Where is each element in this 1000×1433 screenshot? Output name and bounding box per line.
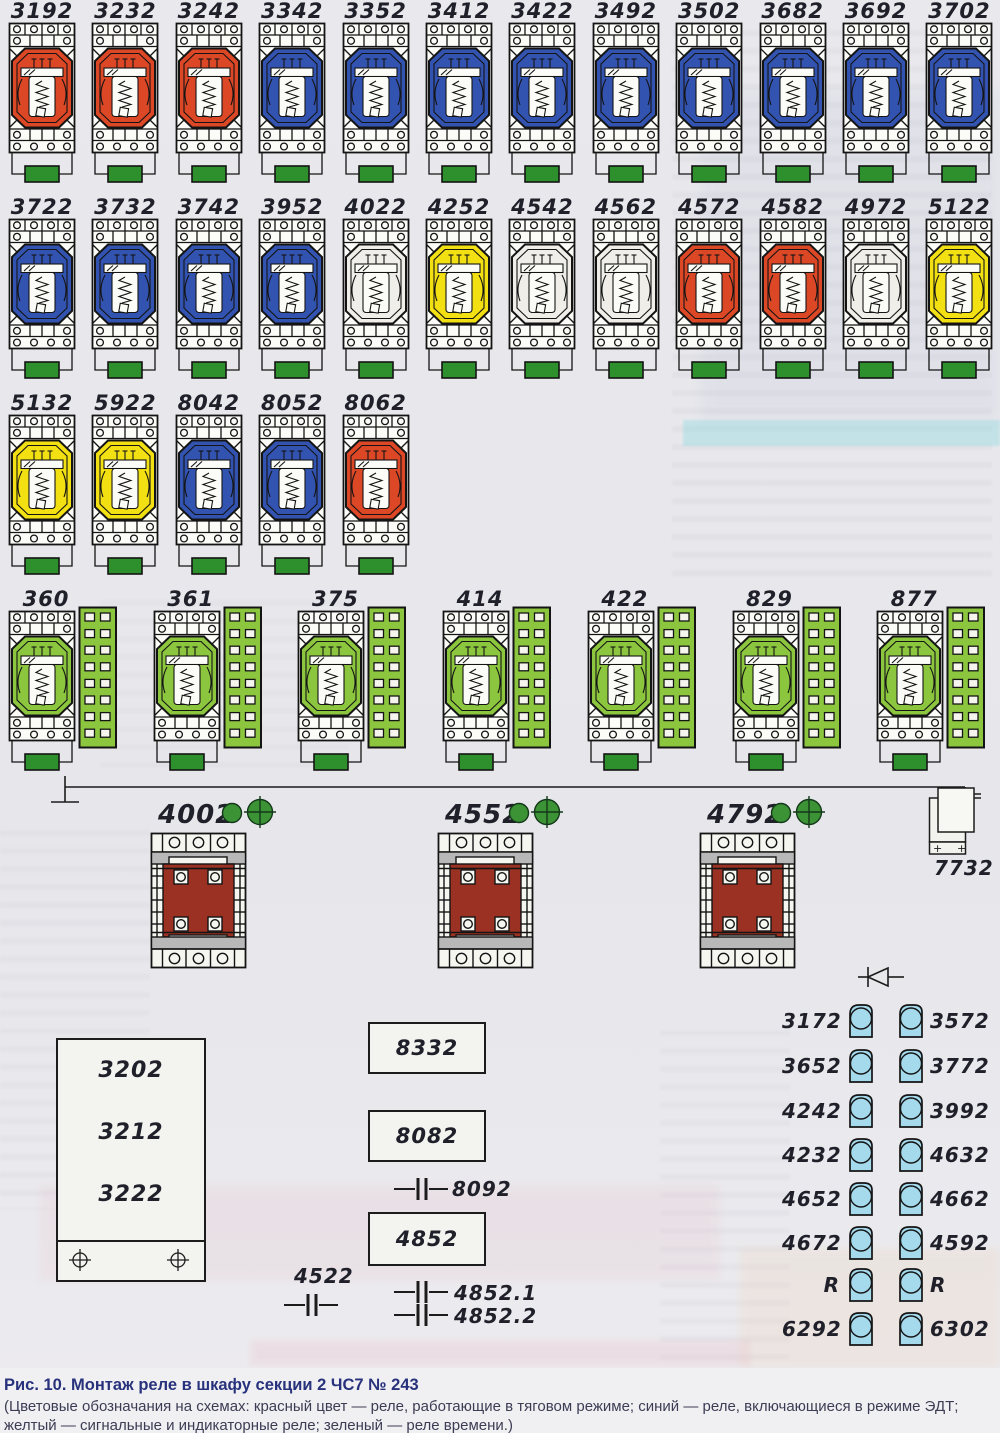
indicator-lamp <box>898 1225 924 1265</box>
relay-icon <box>258 22 326 188</box>
indicator-lamp <box>898 1003 924 1043</box>
relay-unit: 5922 <box>91 392 159 584</box>
transformer-icon <box>150 832 247 969</box>
relay-unit: 8062 <box>342 392 410 584</box>
bleed-through-artifact <box>660 1030 790 1360</box>
time-relay-contact-icon <box>505 794 569 830</box>
relay-unit: 3702 <box>925 0 993 192</box>
indicator-lamp-icon <box>898 1267 924 1303</box>
relay-unit: 4572 <box>675 196 743 388</box>
relay-unit: 4582 <box>759 196 827 388</box>
relay-icon <box>342 218 410 384</box>
indicator-lamp-icon <box>848 1137 874 1173</box>
relay-icon <box>175 218 243 384</box>
relay-icon <box>675 22 743 188</box>
relay-icon <box>91 22 159 188</box>
capacitor-stack-7732: + + 7732 <box>928 786 988 878</box>
terminal-box-label: 3202 <box>58 1058 204 1083</box>
indicator-label-right: 3992 <box>930 1099 1000 1123</box>
relay-label: 3682 <box>759 0 827 22</box>
indicator-label-left: 4232 <box>782 1143 840 1167</box>
relay-icon <box>425 218 493 384</box>
transformer-unit: 4792 <box>699 792 859 972</box>
transformer-unit: 4552 <box>437 792 597 972</box>
diode-icon <box>858 962 904 992</box>
relay-label: 4542 <box>508 196 576 218</box>
indicator-lamp <box>848 1267 874 1307</box>
relay-unit: 3342 <box>258 0 326 192</box>
capacitor-label: 8092 <box>452 1177 512 1201</box>
indicator-lamp-icon <box>898 1137 924 1173</box>
relay-label: 4572 <box>675 196 743 218</box>
relay-icon <box>175 22 243 188</box>
relay-icon <box>91 414 159 580</box>
relay-unit: 4022 <box>342 196 410 388</box>
relay-icon <box>732 610 800 776</box>
transformer-icon <box>699 832 796 969</box>
indicator-lamp <box>898 1267 924 1307</box>
relay-icon <box>8 610 76 776</box>
component-box: 8082 <box>368 1110 486 1162</box>
timer-contact-panel-icon <box>512 606 552 750</box>
time-relay-contact-icon <box>218 794 282 830</box>
timer-relay-unit: 375 <box>297 588 409 756</box>
relay-label: 375 <box>297 588 373 610</box>
terminal-box: 320232123222 <box>56 1038 206 1242</box>
stack-icon: + + <box>928 786 982 858</box>
relay-label: 3952 <box>258 196 326 218</box>
relay-unit: 8052 <box>258 392 326 584</box>
relay-icon <box>675 218 743 384</box>
relay-unit: 3492 <box>592 0 660 192</box>
timer-contact-panel-icon <box>946 606 986 750</box>
relay-icon <box>925 218 993 384</box>
stack-label: 7732 <box>934 856 994 880</box>
figure-caption: Рис. 10. Монтаж реле в шкафу секции 2 ЧС… <box>0 1368 1000 1433</box>
relay-label: 361 <box>153 588 229 610</box>
indicator-lamp <box>848 1137 874 1177</box>
indicator-lamp-icon <box>848 1048 874 1084</box>
relay-icon <box>508 22 576 188</box>
relay-label: 3422 <box>508 0 576 22</box>
relay-label: 3692 <box>842 0 910 22</box>
indicator-lamp <box>848 1048 874 1088</box>
timer-relay-unit: 877 <box>876 588 988 756</box>
timer-relay-unit: 422 <box>587 588 699 756</box>
indicator-label-right: 4662 <box>930 1187 1000 1211</box>
relay-label: 3742 <box>175 196 243 218</box>
mount-hole-icon <box>164 1246 192 1274</box>
relay-unit: 3412 <box>425 0 493 192</box>
relay-unit: 3192 <box>8 0 76 192</box>
relay-unit: 3742 <box>175 196 243 388</box>
relay-icon <box>587 610 655 776</box>
indicator-label-left: 6292 <box>782 1317 840 1341</box>
indicator-lamp-icon <box>848 1225 874 1261</box>
relay-unit: 4542 <box>508 196 576 388</box>
terminal-box-label: 3222 <box>58 1182 204 1207</box>
relay-icon <box>592 218 660 384</box>
relay-icon <box>342 414 410 580</box>
indicator-lamp-icon <box>898 1181 924 1217</box>
timer-contact-panel-icon <box>78 606 118 750</box>
indicator-lamp-icon <box>898 1225 924 1261</box>
terminal-box-label: 3212 <box>58 1120 204 1145</box>
component-label: 8082 <box>396 1124 458 1148</box>
component-label: 8332 <box>396 1036 458 1060</box>
relay-icon <box>842 22 910 188</box>
indicator-lamp <box>898 1093 924 1133</box>
relay-icon <box>876 610 944 776</box>
indicator-label-right: 4592 <box>930 1231 1000 1255</box>
relay-label: 5922 <box>91 392 159 414</box>
indicator-label-left: 4672 <box>782 1231 840 1255</box>
relay-label: 877 <box>876 588 952 610</box>
relay-icon <box>508 218 576 384</box>
relay-icon <box>175 414 243 580</box>
relay-label: 3732 <box>91 196 159 218</box>
relay-icon <box>297 610 365 776</box>
indicator-lamp <box>898 1137 924 1177</box>
relay-icon <box>925 22 993 188</box>
transformer-unit: 4002 <box>150 792 310 972</box>
indicator-label-left: 3172 <box>782 1009 840 1033</box>
relay-icon <box>153 610 221 776</box>
relay-icon <box>8 218 76 384</box>
relay-label: 4582 <box>759 196 827 218</box>
relay-icon <box>759 218 827 384</box>
relay-label: 4022 <box>342 196 410 218</box>
relay-label: 3232 <box>91 0 159 22</box>
relay-label: 3342 <box>258 0 326 22</box>
indicator-lamp-icon <box>898 1048 924 1084</box>
caption-title: Рис. 10. Монтаж реле в шкафу секции 2 ЧС… <box>4 1376 996 1395</box>
component-label: 4852 <box>396 1227 458 1251</box>
relay-icon <box>342 22 410 188</box>
relay-unit: 3352 <box>342 0 410 192</box>
relay-label: 360 <box>8 588 84 610</box>
indicator-label-right: R <box>930 1273 1000 1297</box>
indicator-label-right: 3772 <box>930 1054 1000 1078</box>
relay-unit: 3952 <box>258 196 326 388</box>
indicator-lamp-icon <box>848 1267 874 1303</box>
indicator-lamp-icon <box>848 1003 874 1039</box>
indicator-lamp-icon <box>848 1311 874 1347</box>
indicator-lamp-icon <box>898 1093 924 1129</box>
capacitor-unit <box>394 1176 448 1206</box>
relay-label: 8062 <box>342 392 410 414</box>
relay-unit: 4562 <box>592 196 660 388</box>
indicator-label-right: 6302 <box>930 1317 1000 1341</box>
relay-label: 3352 <box>342 0 410 22</box>
indicator-label-right: 4632 <box>930 1143 1000 1167</box>
relay-unit: 8042 <box>175 392 243 584</box>
time-relay-contact-icon <box>767 794 831 830</box>
indicator-lamp <box>848 1311 874 1351</box>
timer-relay-unit: 360 <box>8 588 120 756</box>
mount-hole-icon <box>66 1246 94 1274</box>
timer-relay-unit: 361 <box>153 588 265 756</box>
timer-contact-panel-icon <box>802 606 842 750</box>
indicator-lamp-icon <box>848 1093 874 1129</box>
transformer-icon <box>437 832 534 969</box>
relay-unit: 4972 <box>842 196 910 388</box>
relay-unit: 5132 <box>8 392 76 584</box>
indicator-lamp <box>848 1093 874 1133</box>
indicator-label-left: 4242 <box>782 1099 840 1123</box>
relay-icon <box>592 22 660 188</box>
relay-icon <box>258 218 326 384</box>
relay-unit: 5122 <box>925 196 993 388</box>
relay-unit: 3732 <box>91 196 159 388</box>
capacitor-label: 4852.2 <box>454 1304 537 1328</box>
capacitor-unit <box>394 1302 448 1332</box>
indicator-lamp <box>898 1181 924 1221</box>
relay-label: 4972 <box>842 196 910 218</box>
relay-label: 4252 <box>425 196 493 218</box>
capacitor-label: 4852.1 <box>454 1281 537 1305</box>
relay-icon <box>91 218 159 384</box>
capacitor-icon <box>394 1176 448 1202</box>
relay-unit: 3422 <box>508 0 576 192</box>
indicator-label-left: R <box>782 1273 840 1297</box>
relay-label: 3192 <box>8 0 76 22</box>
relay-unit: 3682 <box>759 0 827 192</box>
relay-label: 8052 <box>258 392 326 414</box>
component-box: 4852 <box>368 1212 486 1266</box>
relay-label: 422 <box>587 588 663 610</box>
timer-contact-panel-icon <box>367 606 407 750</box>
bleed-through-artifact <box>683 420 1000 446</box>
relay-label: 5122 <box>925 196 993 218</box>
indicator-lamp-icon <box>898 1003 924 1039</box>
relay-label: 3242 <box>175 0 243 22</box>
relay-icon <box>842 218 910 384</box>
terminal-box-base <box>56 1240 206 1282</box>
bleed-through-artifact <box>250 1340 750 1366</box>
plus-mark: + <box>933 842 942 855</box>
relay-icon <box>8 22 76 188</box>
relay-unit: 3692 <box>842 0 910 192</box>
indicator-lamp <box>848 1225 874 1265</box>
caption-body: (Цветовые обозначания на схемах: красный… <box>4 1397 994 1433</box>
relay-icon <box>8 414 76 580</box>
timer-contact-panel-icon <box>657 606 697 750</box>
indicator-lamp <box>898 1048 924 1088</box>
relay-unit: 3232 <box>91 0 159 192</box>
relay-icon <box>759 22 827 188</box>
indicator-lamp-icon <box>848 1181 874 1217</box>
relay-icon <box>258 414 326 580</box>
indicator-label-left: 3652 <box>782 1054 840 1078</box>
relay-label: 3412 <box>425 0 493 22</box>
plus-mark: + <box>957 842 966 855</box>
relay-unit: 3242 <box>175 0 243 192</box>
relay-label: 414 <box>442 588 518 610</box>
relay-label: 5132 <box>8 392 76 414</box>
relay-label: 8042 <box>175 392 243 414</box>
capacitor-label: 4522 <box>294 1264 354 1288</box>
indicator-lamp <box>848 1003 874 1043</box>
scanned-diagram-page: 3192 3232 <box>0 0 1000 1433</box>
indicator-label-left: 4652 <box>782 1187 840 1211</box>
relay-label: 3722 <box>8 196 76 218</box>
relay-label: 3492 <box>592 0 660 22</box>
indicator-lamp <box>848 1181 874 1221</box>
capacitor-unit <box>284 1292 338 1322</box>
relay-unit: 3502 <box>675 0 743 192</box>
relay-label: 4562 <box>592 196 660 218</box>
capacitor-icon <box>394 1302 448 1328</box>
relay-label: 3502 <box>675 0 743 22</box>
capacitor-icon <box>284 1292 338 1318</box>
indicator-label-right: 3572 <box>930 1009 1000 1033</box>
timer-contact-panel-icon <box>223 606 263 750</box>
relay-icon <box>442 610 510 776</box>
relay-unit: 4252 <box>425 196 493 388</box>
relay-label: 3702 <box>925 0 993 22</box>
indicator-lamp-icon <box>898 1311 924 1347</box>
timer-relay-unit: 414 <box>442 588 554 756</box>
timer-relay-unit: 829 <box>732 588 844 756</box>
relay-label: 829 <box>732 588 808 610</box>
indicator-lamp <box>898 1311 924 1351</box>
relay-icon <box>425 22 493 188</box>
component-box: 8332 <box>368 1022 486 1074</box>
relay-unit: 3722 <box>8 196 76 388</box>
